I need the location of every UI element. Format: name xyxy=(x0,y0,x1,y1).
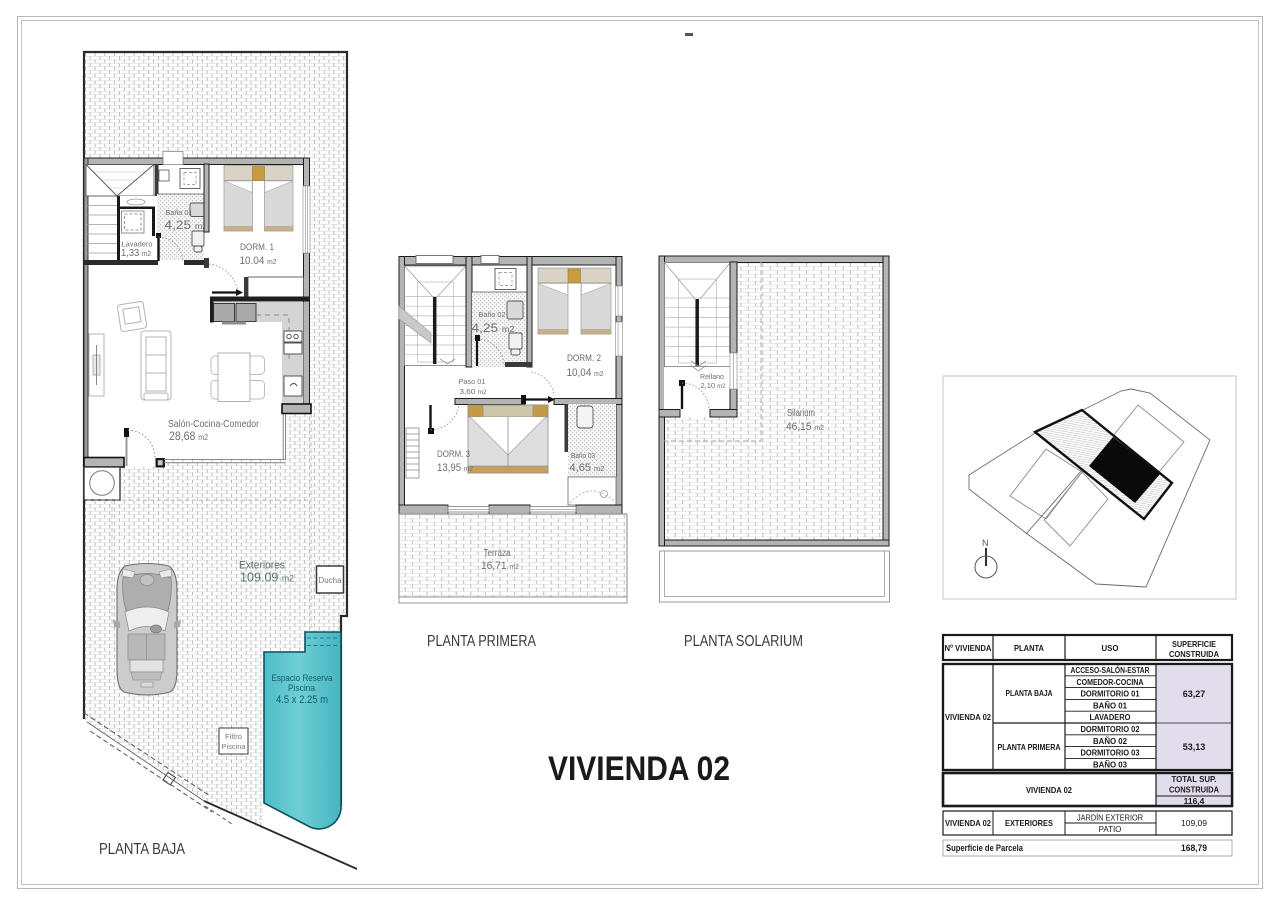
svg-text:Ducha: Ducha xyxy=(319,576,343,585)
svg-text:VIVIENDA 02: VIVIENDA 02 xyxy=(945,818,991,828)
svg-text:DORMITORIO 03: DORMITORIO 03 xyxy=(1081,749,1141,758)
svg-text:Piscina: Piscina xyxy=(222,742,247,751)
svg-text:ACCESO-SALÓN-ESTAR: ACCESO-SALÓN-ESTAR xyxy=(1071,666,1150,675)
svg-text:JARDÍN EXTERIOR: JARDÍN EXTERIOR xyxy=(1077,814,1143,823)
svg-text:116,4: 116,4 xyxy=(1184,796,1205,806)
svg-text:COMEDOR-COCINA: COMEDOR-COCINA xyxy=(1077,678,1144,687)
svg-text:PLANTA BAJA: PLANTA BAJA xyxy=(99,841,185,858)
svg-text:53,13: 53,13 xyxy=(1183,742,1206,752)
svg-text:13,95 m2: 13,95 m2 xyxy=(437,462,473,474)
svg-text:4,65 m2: 4,65 m2 xyxy=(570,462,605,474)
svg-text:PATIO: PATIO xyxy=(1099,825,1122,834)
svg-text:VIVIENDA 02: VIVIENDA 02 xyxy=(1026,785,1072,795)
svg-text:Rellano: Rellano xyxy=(700,372,724,381)
svg-text:DORM. 2: DORM. 2 xyxy=(567,353,601,363)
svg-text:PLANTA PRIMERA: PLANTA PRIMERA xyxy=(998,742,1061,752)
svg-text:Superficie de Parcela: Superficie de Parcela xyxy=(946,843,1024,853)
svg-text:N: N xyxy=(982,538,989,548)
svg-text:Silarium: Silarium xyxy=(787,408,815,419)
svg-text:Filtro: Filtro xyxy=(225,732,242,741)
svg-text:PLANTA BAJA: PLANTA BAJA xyxy=(1006,688,1053,698)
svg-text:16,71 m2: 16,71 m2 xyxy=(481,560,519,572)
svg-text:USO: USO xyxy=(1102,643,1119,653)
svg-text:LAVADERO: LAVADERO xyxy=(1090,713,1131,722)
svg-text:Baño 02: Baño 02 xyxy=(479,310,506,319)
svg-text:CONSTRUIDA: CONSTRUIDA xyxy=(1169,649,1219,659)
svg-text:4.5 x 2.25 m: 4.5 x 2.25 m xyxy=(276,694,328,706)
svg-text:VIVIENDA 02: VIVIENDA 02 xyxy=(548,750,730,788)
svg-text:168,79: 168,79 xyxy=(1181,843,1207,853)
svg-text:46,15 m2: 46,15 m2 xyxy=(786,421,824,433)
svg-text:10,04 m2: 10,04 m2 xyxy=(567,367,604,379)
svg-text:CONSTRUIDA: CONSTRUIDA xyxy=(1169,785,1219,795)
svg-text:63,27: 63,27 xyxy=(1183,689,1206,699)
svg-text:BAÑO 01: BAÑO 01 xyxy=(1093,702,1128,711)
svg-text:Baño 01: Baño 01 xyxy=(166,208,193,217)
svg-text:VIVIENDA 02: VIVIENDA 02 xyxy=(945,712,991,722)
svg-text:TOTAL SUP.: TOTAL SUP. xyxy=(1172,774,1217,784)
svg-text:Terraza: Terraza xyxy=(484,548,511,559)
svg-text:Piscina: Piscina xyxy=(288,683,316,694)
svg-text:EXTERIORES: EXTERIORES xyxy=(1005,818,1053,828)
svg-text:Paso 01: Paso 01 xyxy=(459,377,486,386)
svg-text:PLANTA SOLARIUM: PLANTA SOLARIUM xyxy=(684,633,803,650)
svg-text:PLANTA PRIMERA: PLANTA PRIMERA xyxy=(427,633,536,650)
svg-text:BAÑO 02: BAÑO 02 xyxy=(1093,737,1128,746)
svg-text:BAÑO 03: BAÑO 03 xyxy=(1093,761,1128,770)
svg-text:Baño 03: Baño 03 xyxy=(571,453,595,460)
svg-text:SUPERFICIE: SUPERFICIE xyxy=(1172,639,1216,649)
svg-text:PLANTA: PLANTA xyxy=(1014,643,1044,653)
svg-text:DORMITORIO 01: DORMITORIO 01 xyxy=(1081,690,1141,699)
svg-text:DORMITORIO 02: DORMITORIO 02 xyxy=(1081,725,1141,734)
svg-text:DORM. 3: DORM. 3 xyxy=(437,449,470,459)
svg-text:DORM. 1: DORM. 1 xyxy=(240,242,274,252)
svg-text:109,09: 109,09 xyxy=(1181,818,1207,828)
svg-text:Nº VIVIENDA: Nº VIVIENDA xyxy=(945,643,992,653)
svg-text:10.04 m2: 10.04 m2 xyxy=(240,255,277,267)
